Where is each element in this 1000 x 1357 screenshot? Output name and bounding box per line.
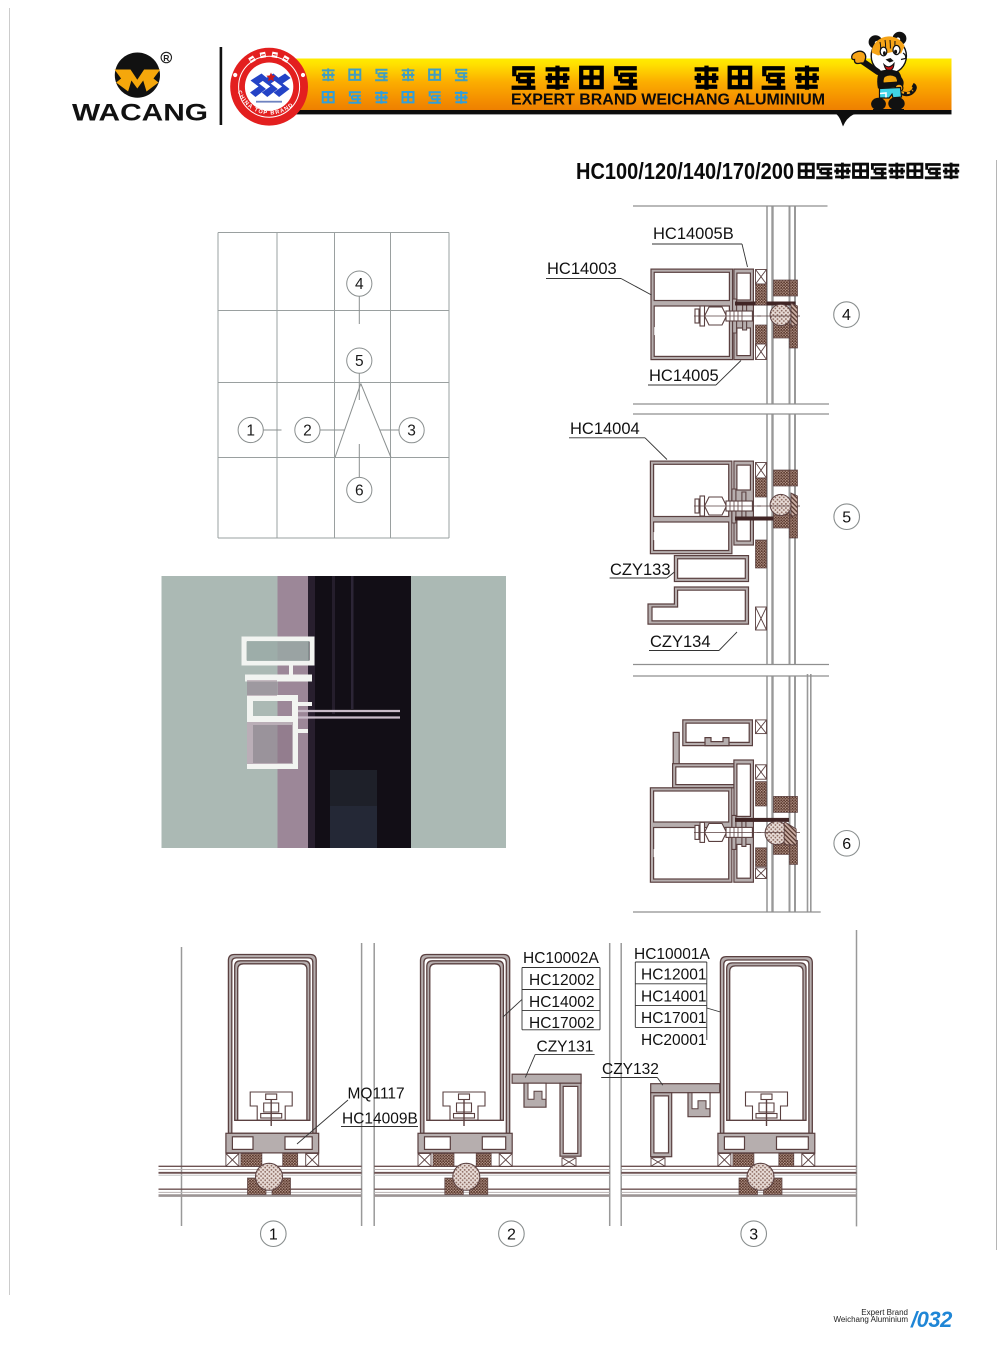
svg-text:1: 1 <box>246 422 255 439</box>
svg-text:2: 2 <box>507 1226 516 1243</box>
svg-text:5: 5 <box>355 353 364 370</box>
svg-text:CZY131: CZY131 <box>537 1039 594 1056</box>
svg-text:4: 4 <box>355 276 364 293</box>
svg-text:HC12002: HC12002 <box>529 972 595 989</box>
svg-text:HC14003: HC14003 <box>547 260 617 278</box>
svg-text:3: 3 <box>407 423 416 440</box>
svg-text:HC12001: HC12001 <box>641 967 707 984</box>
svg-text:HC14009B: HC14009B <box>342 1111 418 1128</box>
svg-text:1: 1 <box>269 1226 278 1243</box>
svg-text:HC17001: HC17001 <box>641 1010 707 1027</box>
svg-text:4: 4 <box>842 307 851 324</box>
svg-text:6: 6 <box>355 482 364 499</box>
svg-text:HC14002: HC14002 <box>529 994 595 1011</box>
svg-text:HC14004: HC14004 <box>570 420 640 438</box>
svg-text:CZY133: CZY133 <box>610 561 671 579</box>
svg-text:WACANG: WACANG <box>72 100 208 127</box>
svg-text:HC10002A: HC10002A <box>523 950 599 967</box>
svg-text:CZY134: CZY134 <box>650 633 711 651</box>
svg-text:HC10001A: HC10001A <box>634 946 710 963</box>
svg-text:5: 5 <box>842 509 851 526</box>
svg-text:2: 2 <box>303 422 312 439</box>
svg-text:HC20001: HC20001 <box>641 1032 707 1049</box>
svg-text:HC14005: HC14005 <box>649 367 719 385</box>
svg-text:R: R <box>163 53 169 63</box>
svg-text:3: 3 <box>749 1226 758 1243</box>
svg-text:HC14005B: HC14005B <box>653 225 734 243</box>
svg-text:HC17002: HC17002 <box>529 1015 595 1032</box>
svg-text:CZY132: CZY132 <box>602 1061 659 1078</box>
svg-text:MQ1117: MQ1117 <box>348 1086 405 1103</box>
svg-text:EXPERT BRAND WEICHANG ALUMINIU: EXPERT BRAND WEICHANG ALUMINIUM <box>511 92 825 109</box>
svg-text:HC14001: HC14001 <box>641 988 707 1005</box>
svg-text:6: 6 <box>842 836 851 853</box>
